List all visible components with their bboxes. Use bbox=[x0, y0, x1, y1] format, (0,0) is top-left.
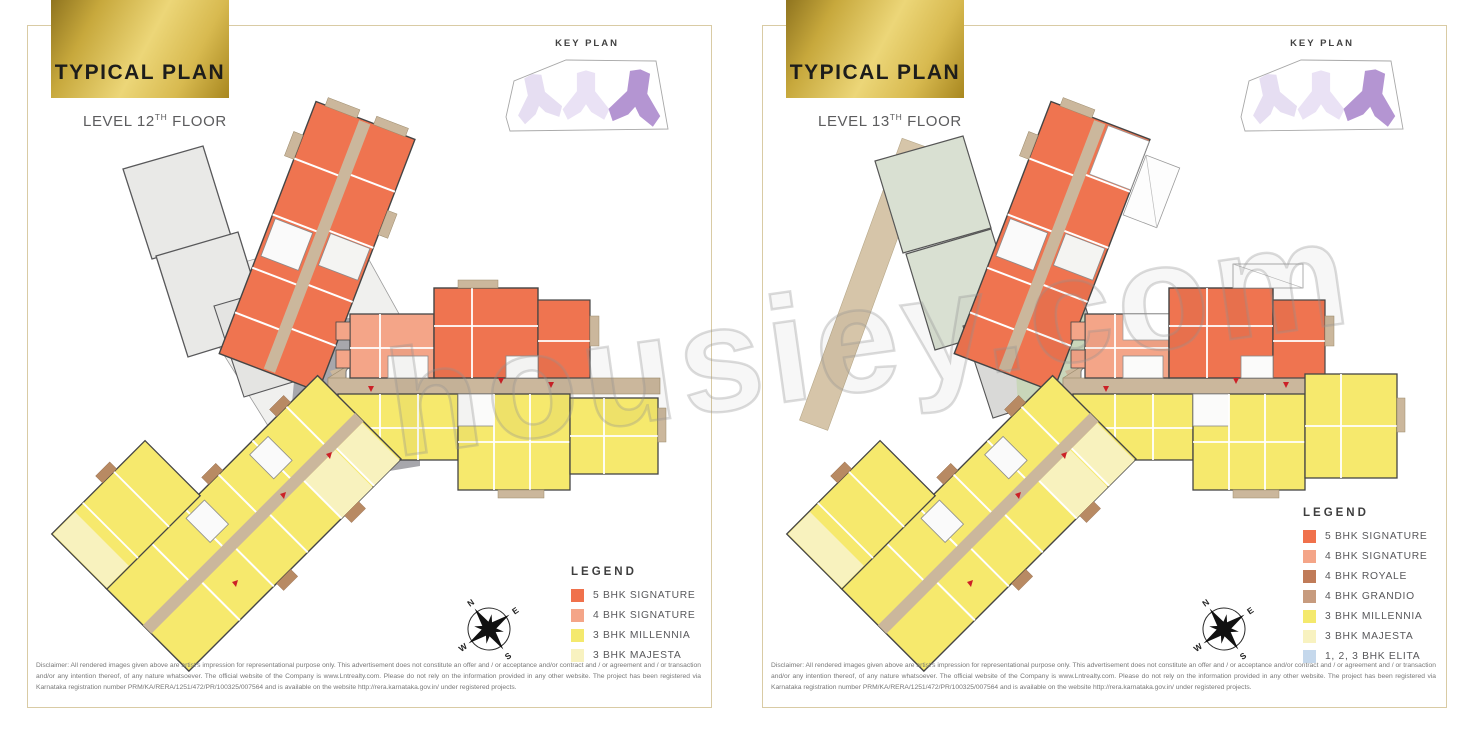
level-text: LEVEL 12 bbox=[83, 113, 155, 130]
compass-letter-n: N bbox=[465, 597, 476, 609]
compass-letter-e: E bbox=[1245, 605, 1256, 617]
legend-swatch bbox=[1303, 530, 1316, 543]
legend-label: 4 BHK ROYALE bbox=[1325, 571, 1407, 582]
legend-label: 3 BHK MILLENNIA bbox=[1325, 611, 1422, 622]
disclaimer-text: Disclaimer: All rendered images given ab… bbox=[771, 661, 1436, 694]
legend-label: 4 BHK SIGNATURE bbox=[1325, 551, 1427, 562]
compass-rose-icon: N E S W bbox=[1178, 579, 1270, 671]
legend-swatch bbox=[571, 629, 584, 642]
level-text: LEVEL 13 bbox=[818, 113, 890, 130]
compass-letter-n: N bbox=[1200, 597, 1211, 609]
legend-item: 5 BHK SIGNATURE bbox=[1303, 530, 1443, 543]
legend-label: 4 BHK SIGNATURE bbox=[593, 610, 695, 621]
legend-item: 5 BHK SIGNATURE bbox=[571, 589, 711, 602]
level-sup: TH bbox=[890, 112, 903, 122]
key-plan-title: KEY PLAN bbox=[500, 38, 674, 49]
gold-title-box: TYPICAL PLAN bbox=[786, 0, 964, 98]
compass-rose-icon: N E S W bbox=[443, 579, 535, 671]
legend-title: LEGEND bbox=[1303, 507, 1443, 519]
compass-letter-w: W bbox=[457, 640, 470, 653]
level-label: LEVEL 12TH FLOOR bbox=[83, 112, 227, 130]
legend-item: 3 BHK MILLENNIA bbox=[1303, 610, 1443, 623]
legend-swatch bbox=[1303, 610, 1316, 623]
legend-items: 5 BHK SIGNATURE 4 BHK SIGNATURE 4 BHK RO… bbox=[1303, 530, 1443, 663]
legend-swatch bbox=[571, 589, 584, 602]
disclaimer-text: Disclaimer: All rendered images given ab… bbox=[36, 661, 701, 694]
level-sup: TH bbox=[155, 112, 168, 122]
legend-swatch bbox=[1303, 590, 1316, 603]
key-plan-title: KEY PLAN bbox=[1235, 38, 1409, 49]
legend-label: 4 BHK GRANDIO bbox=[1325, 591, 1415, 602]
legend-item: 3 BHK MAJESTA bbox=[571, 649, 711, 662]
legend-item: 4 BHK ROYALE bbox=[1303, 570, 1443, 583]
gold-title-box: TYPICAL PLAN bbox=[51, 0, 229, 98]
compass-letter-s: S bbox=[1238, 650, 1249, 662]
legend-item: 4 BHK SIGNATURE bbox=[1303, 550, 1443, 563]
legend-label: 5 BHK SIGNATURE bbox=[1325, 531, 1427, 542]
level-suffix: FLOOR bbox=[902, 113, 961, 130]
legend-item: 3 BHK MILLENNIA bbox=[571, 629, 711, 642]
legend: LEGEND 5 BHK SIGNATURE 4 BHK SIGNATURE 4… bbox=[1303, 507, 1443, 670]
compass-letter-e: E bbox=[510, 605, 521, 617]
legend-label: 1, 2, 3 BHK ELITA bbox=[1325, 651, 1420, 662]
legend-swatch bbox=[571, 609, 584, 622]
legend-label: 3 BHK MAJESTA bbox=[593, 650, 681, 661]
legend-items: 5 BHK SIGNATURE 4 BHK SIGNATURE 3 BHK MI… bbox=[571, 589, 711, 662]
legend-label: 3 BHK MAJESTA bbox=[1325, 631, 1413, 642]
level-label: LEVEL 13TH FLOOR bbox=[818, 112, 962, 130]
panel-level-12: TYPICAL PLAN LEVEL 12TH FLOOR KEY PLAN L… bbox=[27, 25, 712, 708]
legend-swatch bbox=[1303, 570, 1316, 583]
legend-item: 4 BHK SIGNATURE bbox=[571, 609, 711, 622]
panel-level-13: TYPICAL PLAN LEVEL 13TH FLOOR KEY PLAN L… bbox=[762, 25, 1447, 708]
level-suffix: FLOOR bbox=[167, 113, 226, 130]
key-plan-map bbox=[1235, 51, 1409, 141]
legend: LEGEND 5 BHK SIGNATURE 4 BHK SIGNATURE 3… bbox=[571, 566, 711, 669]
compass-letter-w: W bbox=[1192, 640, 1205, 653]
legend-title: LEGEND bbox=[571, 566, 711, 578]
legend-swatch bbox=[1303, 630, 1316, 643]
legend-label: 3 BHK MILLENNIA bbox=[593, 630, 690, 641]
page-title: TYPICAL PLAN bbox=[790, 61, 960, 85]
key-plan: KEY PLAN bbox=[500, 38, 674, 146]
legend-swatch bbox=[1303, 550, 1316, 563]
page-title: TYPICAL PLAN bbox=[55, 61, 225, 85]
legend-swatch bbox=[571, 649, 584, 662]
legend-item: 3 BHK MAJESTA bbox=[1303, 630, 1443, 643]
legend-label: 5 BHK SIGNATURE bbox=[593, 590, 695, 601]
key-plan: KEY PLAN bbox=[1235, 38, 1409, 146]
compass-letter-s: S bbox=[503, 650, 514, 662]
key-plan-map bbox=[500, 51, 674, 141]
legend-item: 4 BHK GRANDIO bbox=[1303, 590, 1443, 603]
